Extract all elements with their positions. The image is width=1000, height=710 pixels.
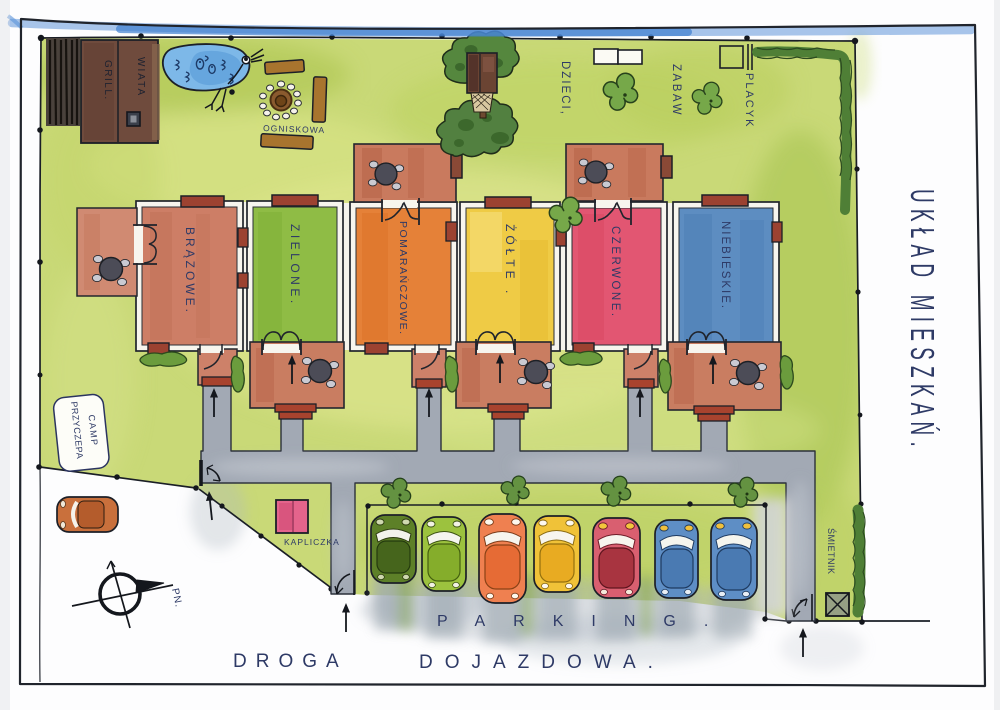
svg-text:NIEBIESKIE.: NIEBIESKIE. bbox=[719, 221, 731, 310]
svg-text:POMARAŃCZOWE.: POMARAŃCZOWE. bbox=[397, 221, 410, 336]
svg-text:KAPLICZKA: KAPLICZKA bbox=[284, 537, 340, 547]
svg-text:DZIECI,: DZIECI, bbox=[559, 61, 571, 116]
svg-text:PLACYK: PLACYK bbox=[743, 73, 755, 128]
svg-text:UKŁAD MIESZKAŃ.: UKŁAD MIESZKAŃ. bbox=[904, 189, 942, 453]
svg-text:ZABAW: ZABAW bbox=[670, 64, 682, 117]
svg-text:BRĄZOWE.: BRĄZOWE. bbox=[183, 227, 197, 315]
svg-text:CZERWONE.: CZERWONE. bbox=[609, 226, 621, 319]
svg-text:WIATA: WIATA bbox=[135, 57, 146, 97]
svg-text:DROGA: DROGA bbox=[233, 651, 348, 672]
svg-text:DOJAZDOWA.: DOJAZDOWA. bbox=[419, 652, 665, 673]
svg-text:GRILL.: GRILL. bbox=[102, 60, 113, 101]
svg-text:PARKING.: PARKING. bbox=[437, 613, 736, 630]
svg-text:ŚMIETNIK: ŚMIETNIK bbox=[826, 528, 837, 575]
svg-text:ŻÓŁTE .: ŻÓŁTE . bbox=[503, 224, 518, 297]
svg-text:ZIELONE.: ZIELONE. bbox=[288, 224, 302, 307]
